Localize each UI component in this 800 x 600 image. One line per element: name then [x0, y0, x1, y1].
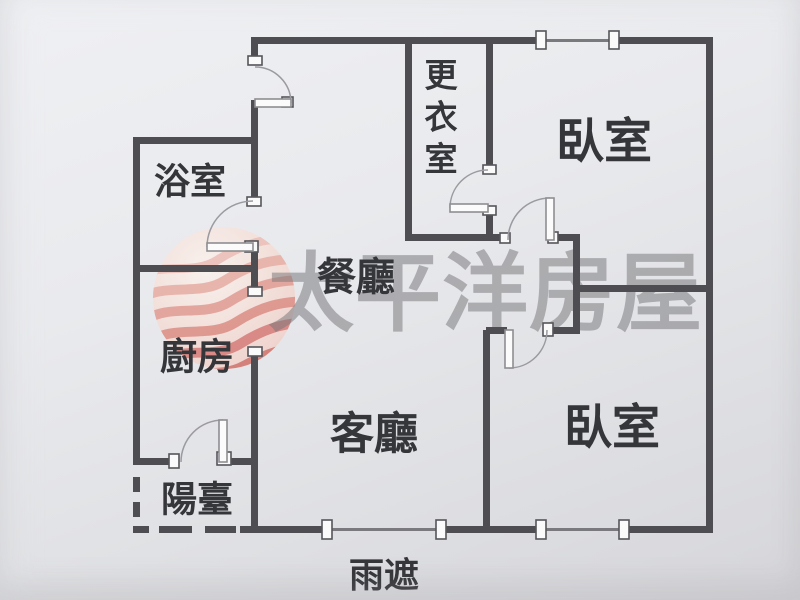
balcony-dashed-wall-segment	[159, 526, 192, 533]
room-label-balcony: 陽臺	[161, 479, 233, 520]
wall-segment	[251, 100, 258, 206]
bedroom-bottom-door-swing-arc	[509, 330, 547, 368]
wall-segment	[229, 458, 258, 465]
room-label-dining-room: 餐廳	[317, 257, 395, 300]
balcony-dashed-wall-segment	[240, 526, 250, 533]
window-glass-line	[546, 528, 620, 531]
wall-segment	[619, 37, 713, 44]
bedroom-bottom-door-leaf	[505, 330, 513, 368]
wall-segment	[483, 330, 490, 533]
room-label-rain-canopy: 雨遮	[349, 557, 419, 596]
room-label-bedroom-bottom: 臥室	[564, 402, 660, 455]
wall-segment	[133, 265, 258, 272]
wall-segment	[405, 37, 412, 241]
closet-door-leaf	[450, 204, 488, 212]
bathroom-door-swing-arc	[207, 201, 253, 247]
wall-segment	[250, 526, 324, 533]
wall-segment	[133, 458, 172, 465]
wall-segment	[573, 234, 580, 334]
bedroom-top-door-swing-arc	[508, 198, 550, 240]
window-glass-line	[545, 39, 610, 42]
door-jamb-bracket	[248, 56, 262, 65]
wall-segment	[133, 137, 140, 465]
window-glass-line	[331, 528, 437, 531]
bedroom-top-door-leaf	[546, 198, 554, 240]
wall-segment	[486, 37, 493, 174]
wall-segment	[133, 137, 258, 144]
room-label-walk-in-closet: 衣	[425, 98, 458, 135]
window-frame-bracket	[609, 31, 619, 49]
wall-segment	[627, 526, 713, 533]
room-label-living-room: 客廳	[330, 410, 418, 459]
entry-door-leaf	[255, 99, 291, 107]
balcony-dashed-wall-segment	[133, 526, 149, 533]
balcony-dashed-wall-segment	[133, 502, 140, 517]
bathroom-door-leaf	[207, 243, 253, 251]
wall-segment	[405, 234, 507, 241]
wall-segment	[444, 526, 538, 533]
wall-segment	[254, 37, 544, 44]
wall-segment	[251, 354, 258, 533]
door-jamb-bracket	[543, 323, 553, 336]
window-frame-bracket	[536, 520, 546, 539]
room-label-bedroom-top: 臥室	[556, 116, 652, 169]
room-label-bathroom: 浴室	[154, 161, 226, 202]
floor-plan: 浴室更衣室臥室餐廳廚房客廳臥室陽臺雨遮	[0, 0, 800, 600]
wall-segment	[580, 285, 713, 292]
room-label-walk-in-closet: 更	[425, 57, 459, 94]
balcony-door-leaf	[219, 420, 227, 462]
room-label-kitchen: 廚房	[160, 336, 234, 378]
window-frame-bracket	[322, 520, 332, 539]
window-frame-bracket	[436, 520, 446, 539]
window-frame-bracket	[536, 31, 546, 49]
door-jamb-bracket	[248, 287, 262, 296]
balcony-dashed-wall-segment	[205, 526, 236, 533]
balcony-dashed-wall-segment	[133, 477, 140, 492]
door-jamb-bracket	[248, 347, 262, 356]
door-jamb-bracket	[169, 454, 179, 468]
room-label-walk-in-closet: 室	[425, 140, 458, 177]
floorplan-photo: 太平洋房屋 浴室更衣室臥室餐廳廚房客廳臥室陽臺雨遮	[0, 0, 800, 600]
wall-segment	[551, 327, 580, 334]
window-frame-bracket	[619, 520, 629, 539]
